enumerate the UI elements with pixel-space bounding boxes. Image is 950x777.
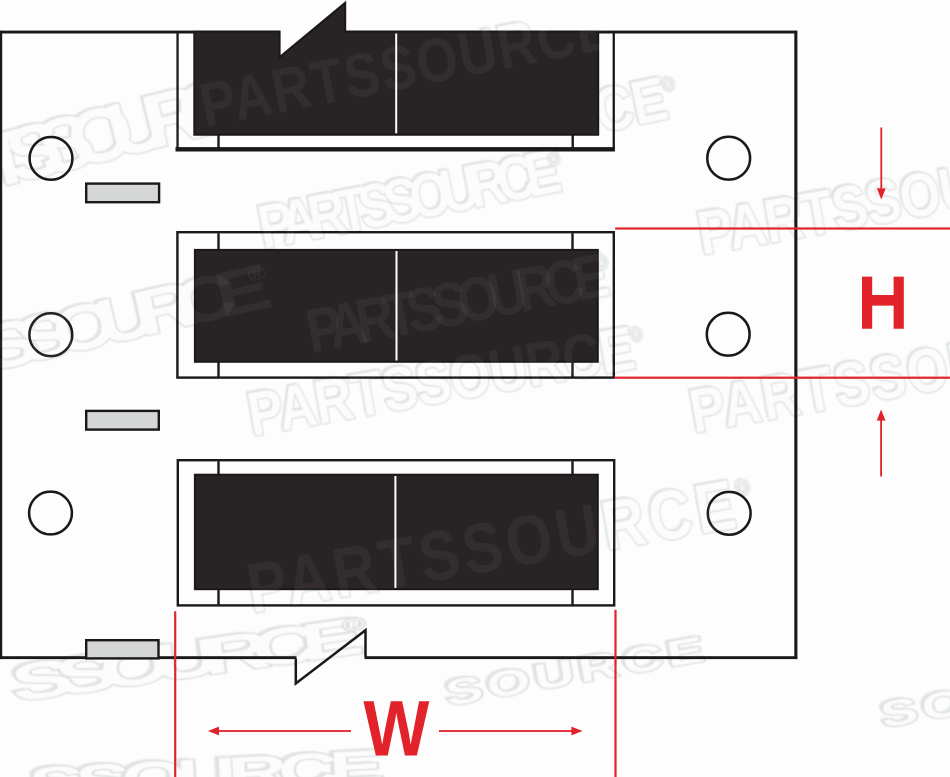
svg-text:W: W: [363, 685, 430, 773]
